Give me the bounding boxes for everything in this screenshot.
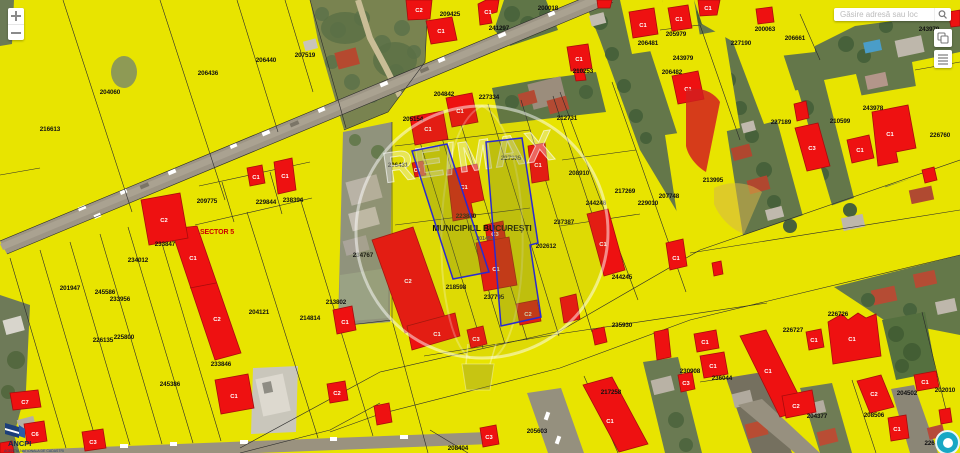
svg-text:206440: 206440 <box>256 57 277 64</box>
svg-text:236044: 236044 <box>712 375 733 382</box>
svg-text:C2: C2 <box>160 218 167 224</box>
svg-text:241297: 241297 <box>489 25 510 32</box>
svg-text:208506: 208506 <box>864 412 885 419</box>
svg-text:C1: C1 <box>675 17 683 23</box>
svg-text:201947: 201947 <box>60 285 81 292</box>
svg-text:C1: C1 <box>341 320 349 326</box>
svg-text:233956: 233956 <box>110 296 131 303</box>
svg-text:212731: 212731 <box>557 115 578 122</box>
svg-text:217269: 217269 <box>615 188 636 195</box>
svg-text:C2: C2 <box>333 391 340 397</box>
svg-text:238394: 238394 <box>283 197 304 204</box>
svg-text:205979: 205979 <box>666 31 687 38</box>
svg-text:C1: C1 <box>484 10 492 16</box>
svg-text:208404: 208404 <box>448 445 469 452</box>
svg-text:C1: C1 <box>893 427 901 433</box>
svg-text:233846: 233846 <box>211 361 232 368</box>
svg-text:227189: 227189 <box>771 119 792 126</box>
svg-text:C1: C1 <box>252 175 260 181</box>
svg-text:213995: 213995 <box>703 177 724 184</box>
svg-text:C1: C1 <box>886 132 894 138</box>
svg-text:206482: 206482 <box>662 69 683 76</box>
svg-text:C3: C3 <box>682 381 690 387</box>
svg-text:226760: 226760 <box>930 132 951 139</box>
svg-text:200018: 200018 <box>538 5 559 12</box>
svg-text:207519: 207519 <box>295 52 316 59</box>
svg-text:C1: C1 <box>764 369 772 375</box>
svg-text:C3: C3 <box>808 146 816 152</box>
svg-text:AGENTIA NATIONALA DE CADASTRU: AGENTIA NATIONALA DE CADASTRU <box>4 449 64 453</box>
svg-text:C1: C1 <box>704 6 712 12</box>
svg-text:226135: 226135 <box>93 337 114 344</box>
svg-text:ANCPI: ANCPI <box>8 439 31 448</box>
svg-text:C3: C3 <box>485 435 493 441</box>
svg-text:204060: 204060 <box>100 89 121 96</box>
svg-text:227334: 227334 <box>479 94 500 101</box>
svg-text:243979: 243979 <box>673 55 694 62</box>
svg-text:204502: 204502 <box>897 390 918 397</box>
svg-text:202010: 202010 <box>935 387 956 394</box>
svg-text:C3: C3 <box>89 440 97 446</box>
svg-text:C1: C1 <box>921 380 929 386</box>
svg-text:C1: C1 <box>672 256 680 262</box>
svg-text:C2: C2 <box>213 317 220 323</box>
svg-text:209775: 209775 <box>197 198 218 205</box>
svg-text:C1: C1 <box>230 394 238 400</box>
svg-text:234012: 234012 <box>128 257 149 264</box>
svg-text:200063: 200063 <box>755 26 776 33</box>
svg-text:227190: 227190 <box>731 40 752 47</box>
svg-text:C1: C1 <box>281 174 289 180</box>
svg-text:214814: 214814 <box>300 315 321 322</box>
svg-text:SECTOR 5: SECTOR 5 <box>200 229 234 236</box>
svg-text:C1: C1 <box>575 57 583 63</box>
svg-text:206481: 206481 <box>638 40 659 47</box>
svg-text:C1: C1 <box>856 148 864 154</box>
svg-text:243978: 243978 <box>863 105 884 112</box>
svg-text:244245: 244245 <box>612 274 633 281</box>
svg-text:229844: 229844 <box>256 199 277 206</box>
svg-text:C1: C1 <box>701 340 709 346</box>
svg-text:C1: C1 <box>189 256 197 262</box>
svg-text:207748: 207748 <box>659 193 680 200</box>
svg-text:206436: 206436 <box>198 70 219 77</box>
svg-text:C1: C1 <box>810 338 818 344</box>
svg-text:229010: 229010 <box>638 200 659 207</box>
svg-text:C1: C1 <box>709 364 717 370</box>
svg-text:C2: C2 <box>792 404 799 410</box>
svg-text:226727: 226727 <box>783 327 804 334</box>
svg-text:230908: 230908 <box>680 368 701 375</box>
svg-text:205603: 205603 <box>527 428 548 435</box>
svg-text:C7: C7 <box>21 400 28 406</box>
svg-text:204377: 204377 <box>807 413 828 420</box>
svg-text:209425: 209425 <box>440 11 461 18</box>
svg-text:213802: 213802 <box>326 299 347 306</box>
svg-text:233847: 233847 <box>155 241 176 248</box>
svg-text:C2: C2 <box>870 392 877 398</box>
svg-text:C2: C2 <box>415 8 422 14</box>
svg-text:216613: 216613 <box>40 126 61 133</box>
svg-text:226726: 226726 <box>828 311 849 318</box>
svg-text:204121: 204121 <box>249 309 270 316</box>
svg-text:245386: 245386 <box>160 381 181 388</box>
svg-text:C1: C1 <box>606 419 614 425</box>
svg-text:217258: 217258 <box>601 389 622 396</box>
svg-text:C1: C1 <box>639 23 647 29</box>
svg-text:235930: 235930 <box>612 322 633 329</box>
svg-text:206661: 206661 <box>785 35 806 42</box>
svg-text:C1: C1 <box>437 29 445 35</box>
svg-text:245586: 245586 <box>95 289 116 296</box>
svg-text:210253: 210253 <box>573 68 594 75</box>
svg-text:C1: C1 <box>848 337 856 343</box>
svg-text:210599: 210599 <box>830 118 851 125</box>
svg-text:204842: 204842 <box>434 91 455 98</box>
svg-text:225800: 225800 <box>114 334 135 341</box>
